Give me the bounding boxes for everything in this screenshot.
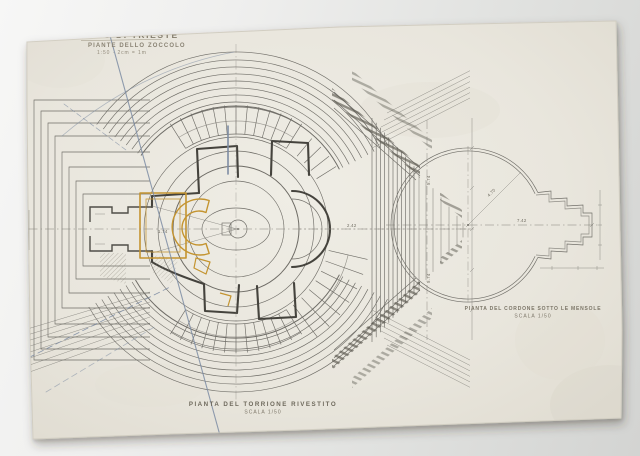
drawing-photo: 1.74 2.42 5.74 5.74 4.70 7.42	[0, 0, 640, 456]
dim-radius-horiz: 7.42	[517, 218, 527, 223]
side-caption-line2: SCALA 1/50	[514, 314, 551, 320]
title-line3: 1:50 · 2cm = 1m	[97, 50, 147, 56]
main-caption-line1: PIANTA DEL TORRIONE RIVESTITO	[189, 401, 337, 408]
main-caption-line2: SCALA 1/50	[244, 410, 281, 416]
side-caption-line1: PIANTA DEL CORDONE SOTTO LE MENSOLE	[465, 306, 602, 312]
dim-flank-top: 5.74	[426, 175, 431, 185]
dim-flank-bottom: 5.74	[426, 273, 431, 283]
dim-room: 1.74	[158, 229, 168, 234]
title-line2: PIANTE DELLO ZOCCOLO	[88, 43, 186, 49]
photo-backdrop: 1.74 2.42 5.74 5.74 4.70 7.42	[0, 0, 640, 456]
dim-flank-mid: 2.42	[347, 223, 357, 228]
title-line1: FARO DI TRIESTE	[82, 30, 179, 40]
